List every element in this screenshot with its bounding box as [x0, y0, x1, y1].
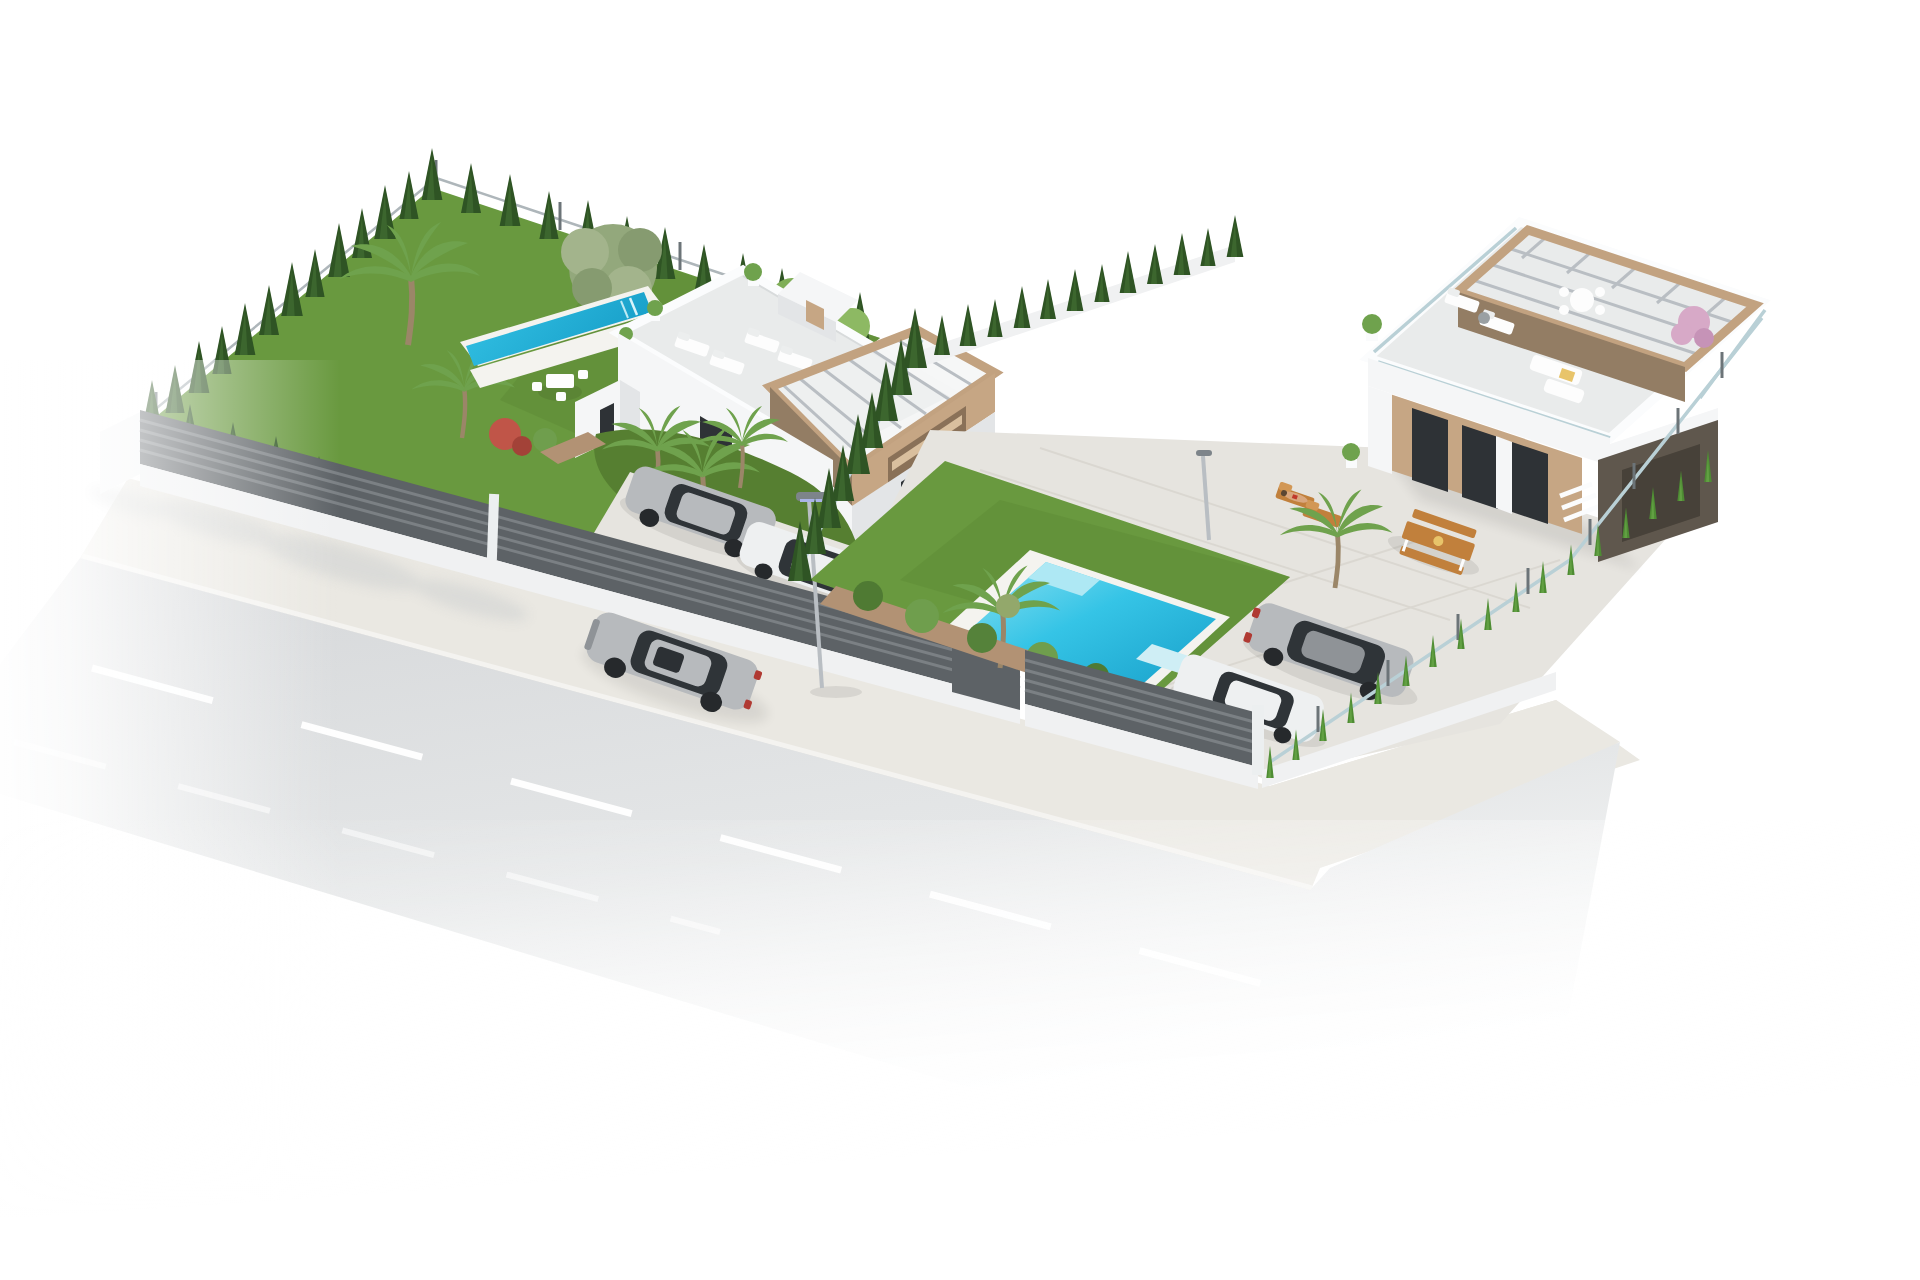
bottom-fade: [0, 820, 1920, 1280]
render-canvas: [0, 0, 1920, 1280]
roof-round-table: [1570, 288, 1594, 312]
fire-pit: [1478, 312, 1490, 324]
villa-render: [0, 0, 1920, 1280]
corner-pillar: [1252, 705, 1264, 775]
